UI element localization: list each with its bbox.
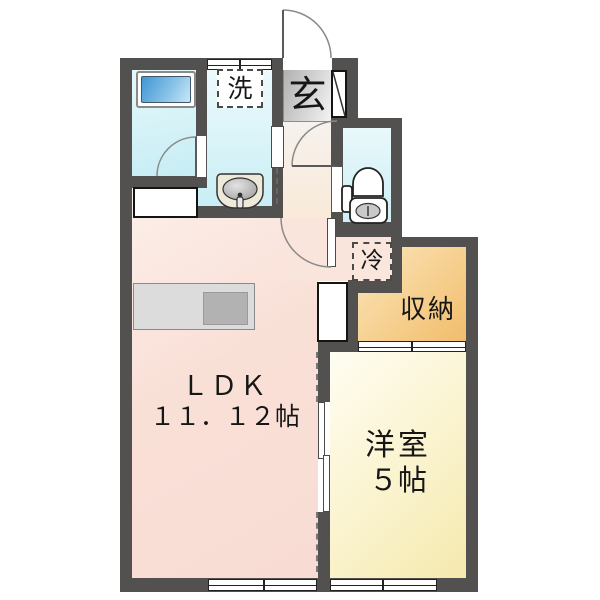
ldk-door (281, 218, 331, 267)
western-room-label: 洋室 ５帖 (330, 429, 466, 497)
western-room-size: ５帖 (330, 463, 466, 497)
floor-plan: 玄 洗 冷 収納 ＬＤＫ １１．１２帖 洋室 ５帖 (0, 0, 600, 600)
shoe-cabinet-diagonal (333, 72, 345, 116)
ldk-label: ＬＤＫ １１．１２帖 (145, 372, 305, 431)
hall-door (292, 121, 337, 166)
entrance-label: 玄 (283, 71, 332, 119)
refrigerator-label: 冷 (352, 242, 392, 281)
western-room-name: 洋室 (330, 429, 466, 463)
entrance-door (283, 10, 331, 58)
toilet (342, 168, 387, 223)
bathroom-door (157, 137, 196, 176)
washbasin (217, 174, 263, 208)
ldk-name: ＬＤＫ (145, 372, 305, 402)
ldk-size: １１．１２帖 (145, 402, 305, 431)
laundry-label: 洗 (217, 69, 263, 108)
storage-label: 収納 (390, 296, 466, 324)
